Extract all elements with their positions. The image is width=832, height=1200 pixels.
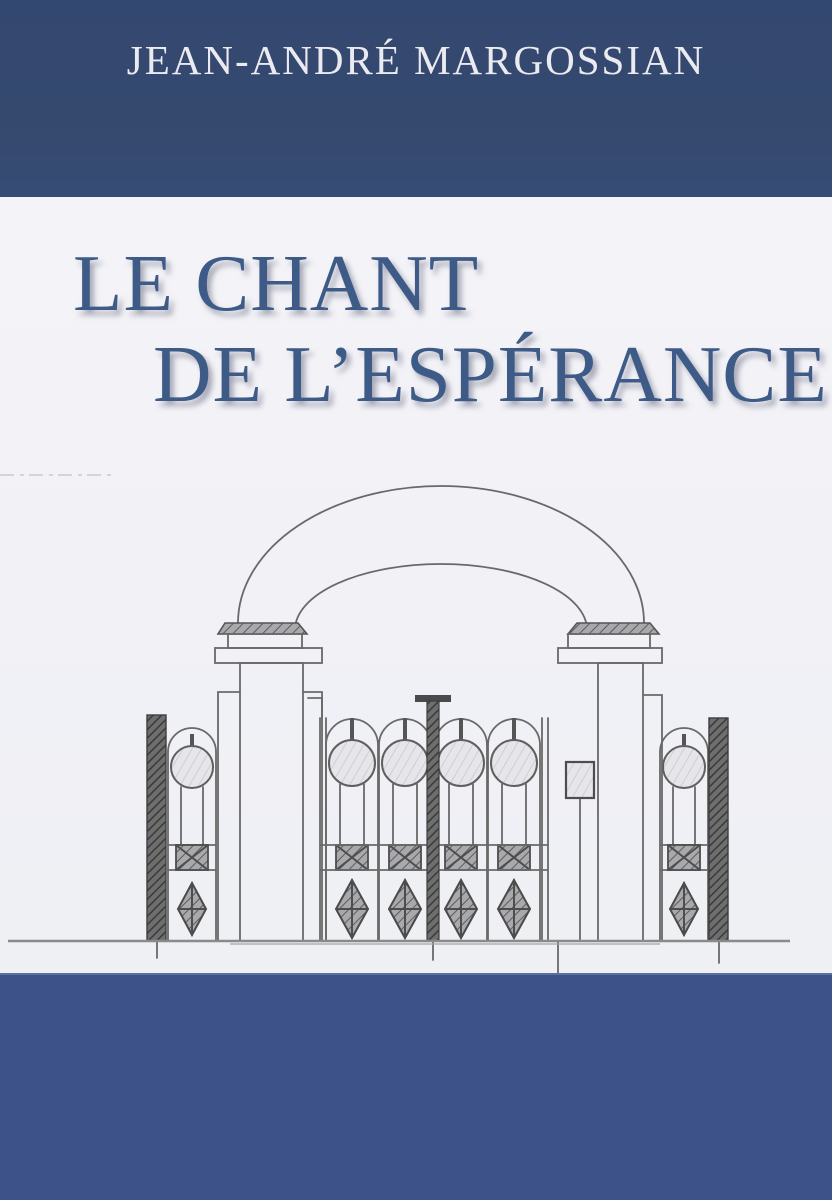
bottom-band: LESPRESSESDUMIDI bbox=[0, 973, 832, 1200]
left-panel-unit bbox=[168, 728, 216, 941]
left-dark-post bbox=[147, 715, 166, 958]
author-name: JEAN-ANDRÉ MARGOSSIAN bbox=[0, 36, 832, 84]
center-post bbox=[415, 695, 451, 960]
book-cover: JEAN-ANDRÉ MARGOSSIAN LE CHANT DE L’ESPÉ… bbox=[0, 0, 832, 1200]
right-panel-unit bbox=[660, 728, 708, 941]
title-line-2: DE L’ESPÉRANCE bbox=[153, 329, 828, 420]
ground-line bbox=[8, 941, 790, 944]
author-name-text: JEAN-ANDRÉ MARGOSSIAN bbox=[127, 37, 705, 83]
cover-illustration bbox=[0, 460, 832, 973]
title-line-1: LE CHANT bbox=[73, 238, 828, 329]
book-title: LE CHANT DE L’ESPÉRANCE bbox=[73, 238, 828, 420]
grand-arch bbox=[238, 486, 644, 630]
top-band: JEAN-ANDRÉ MARGOSSIAN bbox=[0, 0, 832, 197]
left-pylon bbox=[215, 623, 322, 941]
right-pylon bbox=[558, 623, 662, 973]
gate-sketch bbox=[0, 460, 832, 973]
right-dark-post bbox=[709, 718, 728, 963]
